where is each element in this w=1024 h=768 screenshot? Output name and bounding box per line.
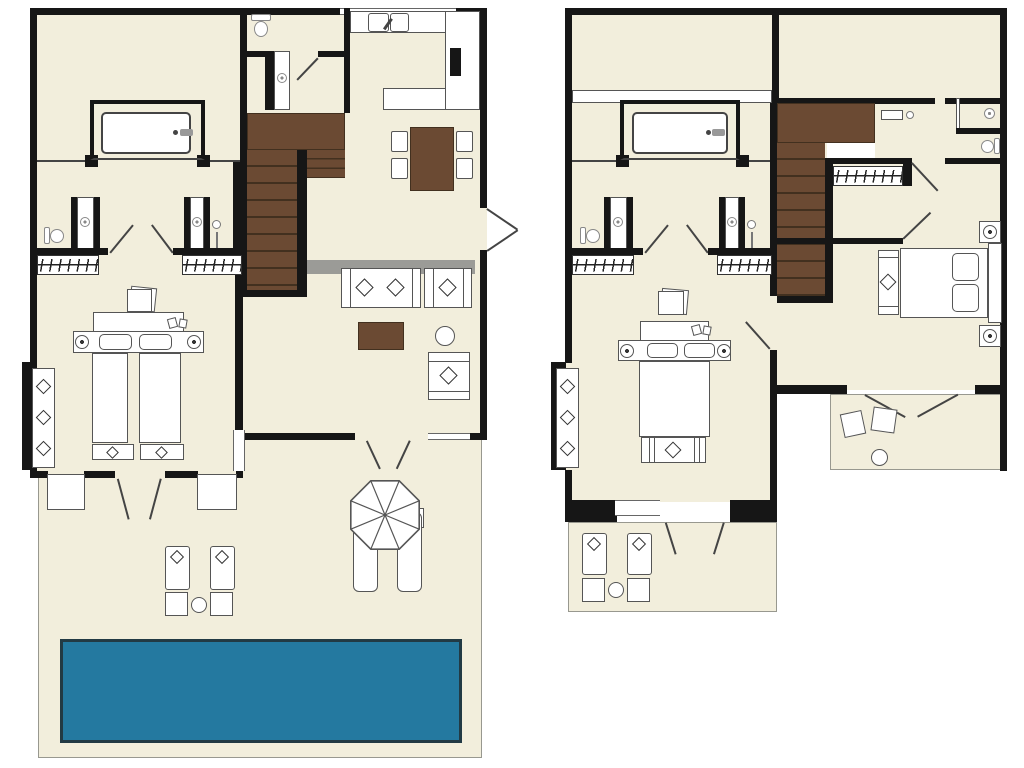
shower-jamb-4 <box>739 197 745 252</box>
bench-slat <box>654 438 655 462</box>
stair-flight <box>247 150 297 290</box>
dining-chair-3 <box>456 131 473 152</box>
basin-icon <box>906 111 914 119</box>
wall-bedroom-bottom-2 <box>84 471 115 478</box>
armchair-armrest <box>429 391 469 392</box>
wardrobe-hanger-rail-right <box>717 255 772 275</box>
bedside-lamp-icon <box>983 225 997 239</box>
bench-slat <box>649 438 650 462</box>
wall-right-lower <box>480 250 487 440</box>
wall-living-bottom-corner <box>470 433 487 440</box>
twin-bed-left <box>92 353 128 443</box>
basin-icon <box>212 220 221 229</box>
wall-wc-left <box>240 8 247 113</box>
bathroom-bottom-wall-b <box>945 158 1000 164</box>
side-table-square <box>165 592 188 616</box>
shower-jamb-4 <box>204 197 210 252</box>
stair-landing <box>247 113 345 150</box>
bench-slat <box>694 438 695 462</box>
bathtub-faucet <box>712 129 725 136</box>
side-table-square <box>582 578 605 602</box>
shower-jamb-2 <box>94 197 100 252</box>
wardrobe-wall-left <box>30 248 108 255</box>
sofa-armrest <box>412 269 413 307</box>
bench-slat <box>879 257 898 258</box>
wardrobe-wall-right <box>173 248 243 255</box>
bedroom-bottom-wall-right <box>730 500 777 522</box>
stair-landing <box>777 103 875 143</box>
bedside-lamp-icon <box>75 335 89 349</box>
swimming-pool <box>60 639 462 743</box>
pillow <box>139 334 172 350</box>
hall-toilet-bowl <box>50 229 64 243</box>
shower-head-icon <box>192 217 202 227</box>
wall-bedrooms-divider-lower <box>770 350 777 500</box>
pillow <box>99 334 132 350</box>
shower-head-icon <box>727 217 737 227</box>
bench-slat <box>699 438 700 462</box>
desk-stool <box>658 291 684 315</box>
dining-chair-2 <box>391 158 408 179</box>
bedroom-window-box-left <box>47 474 85 510</box>
bedroom-bottom-wall-left <box>565 500 617 522</box>
wall-top-divider <box>772 8 779 103</box>
bedside-lamp-icon <box>620 344 634 358</box>
stair-treads-right <box>307 150 345 178</box>
stair-landing-notch <box>827 143 875 158</box>
wall-bedroom-bottom-1 <box>30 471 48 478</box>
toilet-bowl <box>981 140 994 153</box>
balcony-chair <box>870 406 897 433</box>
toilet-tank <box>994 138 1000 154</box>
shower-jamb-2 <box>627 197 633 252</box>
wardrobe-hanger-rail <box>833 166 903 186</box>
bathroom-inner-wall <box>956 128 1000 134</box>
entrance-door-swing-lower <box>487 229 519 251</box>
toilet-tank-wc <box>251 14 271 21</box>
toilet-bowl-wc <box>254 21 268 37</box>
sofa-two-seat <box>341 268 421 308</box>
shower-head-icon <box>984 108 995 119</box>
bath-wall-line-left <box>572 160 620 162</box>
wall-left <box>565 8 572 363</box>
master-headboard <box>988 243 1002 323</box>
kitchen-sink-basin-right <box>390 13 409 32</box>
balcony-wall-right <box>975 385 1007 394</box>
wall-hall-stairs <box>233 160 240 255</box>
sofa-armrest <box>350 269 351 307</box>
dining-chair-1 <box>391 131 408 152</box>
bedroom-right-opening <box>233 430 245 471</box>
bedside-lamp-icon <box>983 329 997 343</box>
shower-glass-divider <box>956 98 960 130</box>
entrance-door-swing-upper <box>487 208 519 230</box>
desk-stool <box>127 289 152 312</box>
decor-card <box>178 318 187 328</box>
side-table-square <box>627 578 650 602</box>
bedroom-bottom-corner-left <box>565 470 572 502</box>
stair-flight <box>777 143 825 296</box>
armchair-armrest <box>429 361 469 362</box>
bedroom-window <box>615 500 660 516</box>
wardrobe-wall-right <box>708 248 777 255</box>
wall-topright-bottom-b <box>945 98 1000 104</box>
wall-wc-door-jamb <box>318 51 344 57</box>
wall-top <box>565 8 1007 15</box>
bench-slat <box>879 306 898 307</box>
wall-bedroom-bottom-4 <box>236 471 243 478</box>
bedroom-window-box-right <box>197 474 237 510</box>
side-table-square <box>210 592 233 616</box>
bathtub-faucet <box>180 129 193 136</box>
wall-bedroom-bottom-3 <box>165 471 198 478</box>
wardrobe-hanger-rail-left <box>37 255 99 275</box>
stair-bottom-wall <box>240 290 307 297</box>
double-bed <box>639 361 710 437</box>
coffee-table <box>358 322 404 350</box>
bedside-lamp-icon <box>187 335 201 349</box>
living-window <box>428 433 470 440</box>
shower-head-icon <box>80 217 90 227</box>
cooker-appliance <box>450 48 461 76</box>
basin-icon <box>747 220 756 229</box>
kitchen-counter-lower <box>383 88 446 110</box>
wall-right <box>1000 8 1007 471</box>
wall-right-upper <box>480 8 487 208</box>
parasol-icon <box>346 476 424 554</box>
hall-toilet-bowl <box>586 229 600 243</box>
pillow <box>952 284 979 312</box>
wardrobe-hanger-rail-left <box>572 255 634 275</box>
armchair-armrest <box>433 269 434 307</box>
round-table <box>871 449 888 466</box>
bedside-lamp-icon <box>717 344 731 358</box>
wall-living-bottom <box>240 433 355 440</box>
balcony-chair <box>840 410 867 438</box>
twin-bed-right <box>139 353 181 443</box>
shower-head-icon <box>613 217 623 227</box>
shower-top-wall <box>265 51 274 110</box>
wall-bedroom-right <box>235 255 243 430</box>
stair-bottom-wall <box>777 296 833 303</box>
master-bedroom-top-wall <box>777 238 903 244</box>
wardrobe-wall-left <box>565 248 643 255</box>
pillow <box>647 343 678 358</box>
shower-head-icon <box>277 73 287 83</box>
armchair-armrest <box>463 269 464 307</box>
stair-divider-wall <box>297 150 307 290</box>
floor-plan-canvas <box>0 0 1024 768</box>
pillow <box>952 253 979 281</box>
twin-bedroom-floor <box>30 435 240 478</box>
stair-divider-wall <box>825 158 833 296</box>
decor-card <box>702 325 711 335</box>
bath-wall-line-left <box>37 160 90 162</box>
wardrobe-top-wall <box>825 158 912 164</box>
bath-wall-line-right <box>205 160 240 162</box>
balcony-wall-left <box>777 385 847 394</box>
pillow <box>684 343 715 358</box>
wardrobe-hanger-rail-right <box>182 255 242 275</box>
vanity-shelf <box>881 110 903 120</box>
bathtub-drain <box>173 130 178 135</box>
dining-table <box>410 127 454 191</box>
dining-chair-4 <box>456 158 473 179</box>
bathtub-drain <box>706 130 711 135</box>
round-table <box>608 582 624 598</box>
side-table-round <box>435 326 455 346</box>
round-table <box>191 597 207 613</box>
